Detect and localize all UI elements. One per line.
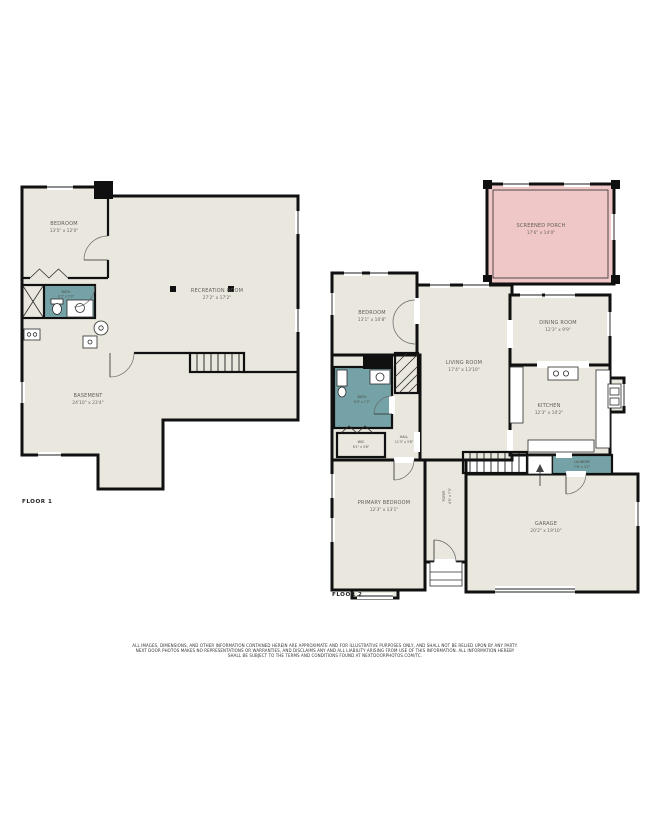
hall-label: HALL (400, 435, 409, 439)
floor1-bath-label: BATH (61, 290, 70, 294)
cooktop-icon (548, 367, 578, 380)
primary-bedroom-room (332, 460, 425, 590)
floor1-basement-label: BASEMENT (73, 393, 103, 399)
primary-label: PRIMARY BEDROOM (358, 500, 411, 506)
garage-dims: 20'2" x 19'10" (530, 528, 561, 534)
washer-dryer-icon (24, 329, 40, 340)
wic-dims: 6'1" x 3'6" (353, 445, 370, 449)
disclaimer: ALL IMAGES, DIMENSIONS, AND OTHER INFORM… (132, 643, 517, 658)
floor1-chimney-block (94, 181, 113, 199)
living-dims: 17'4" x 13'10" (448, 367, 479, 373)
floor2-screened-porch: SCREENED PORCH 17'6" x 14'0" (483, 180, 620, 284)
kitchen-counter (596, 370, 610, 448)
hall-dims: 11'3" x 3'8" (395, 440, 414, 444)
kitchen-label: KITCHEN (537, 403, 560, 409)
wic-label: WIC (358, 440, 365, 444)
floor1-title: FLOOR 1 (22, 499, 52, 505)
laundry-label: LAUNDRY (574, 460, 591, 464)
floor1-plan: BEDROOM 13'5" x 12'0" RECREATION ROOM 27… (19, 181, 301, 505)
floor-plan-canvas: BEDROOM 13'5" x 12'0" RECREATION ROOM 27… (0, 0, 650, 840)
garage-label: GARAGE (535, 521, 557, 527)
foyer-label: FOYER (442, 490, 446, 502)
pantry-counter (510, 367, 523, 423)
post-icon (170, 286, 176, 292)
foyer-room (425, 460, 466, 562)
floor2-bath-dims: 8'0" x 7'2" (354, 400, 371, 404)
floor2-title: FLOOR 2 (332, 592, 362, 598)
floor1-bedroom-dims: 13'5" x 12'0" (50, 228, 79, 234)
dining-label: DINING ROOM (539, 320, 577, 326)
front-stoop (430, 562, 462, 586)
utility-box-icon (83, 336, 97, 348)
floor1-basement-dims: 24'10" x 23'4" (72, 400, 103, 406)
primary-dims: 12'3" x 13'1" (370, 507, 399, 513)
porch-dims: 17'6" x 14'0" (527, 230, 556, 236)
floor2-plan: SCREENED PORCH 17'6" x 14'0" (329, 180, 641, 599)
sink-counter-icon (67, 300, 93, 317)
porch-label: SCREENED PORCH (516, 223, 565, 229)
porch-post-icon (611, 180, 620, 189)
living-label: LIVING ROOM (446, 360, 482, 366)
floor2-bedroom-label: BEDROOM (358, 310, 386, 316)
laundry-dims: 7'6" x 3'2" (574, 465, 591, 469)
garage-door (495, 586, 575, 595)
floor-plan-page: BEDROOM 13'5" x 12'0" RECREATION ROOM 27… (0, 0, 650, 840)
floor1-bath-dims: 8'2" x 5'0" (58, 295, 75, 299)
floor2-bedroom-dims: 13'1" x 10'8" (358, 317, 387, 323)
floor1-recreation-label: RECREATION ROOM (191, 288, 243, 294)
disclaimer-line-3: SHALL BE SUBJECT TO THE TERMS AND CONDIT… (228, 653, 422, 658)
kitchen-counter (528, 440, 594, 452)
porch-post-icon (611, 275, 620, 284)
floor1-bedroom-label: BEDROOM (50, 221, 78, 227)
floor1-recreation-dims: 27'2" x 17'2" (203, 295, 232, 301)
toilet-icon (337, 370, 347, 386)
kitchen-dims: 12'3" x 10'2" (535, 410, 564, 416)
foyer-dims: 4'5" x 7'3" (448, 487, 452, 504)
porch-post-icon (483, 180, 492, 189)
dining-dims: 12'3" x 9'9" (545, 327, 571, 333)
floor2-bath-label: BATH (357, 395, 366, 399)
water-heater-icon (94, 321, 108, 335)
sink-icon (370, 370, 390, 384)
